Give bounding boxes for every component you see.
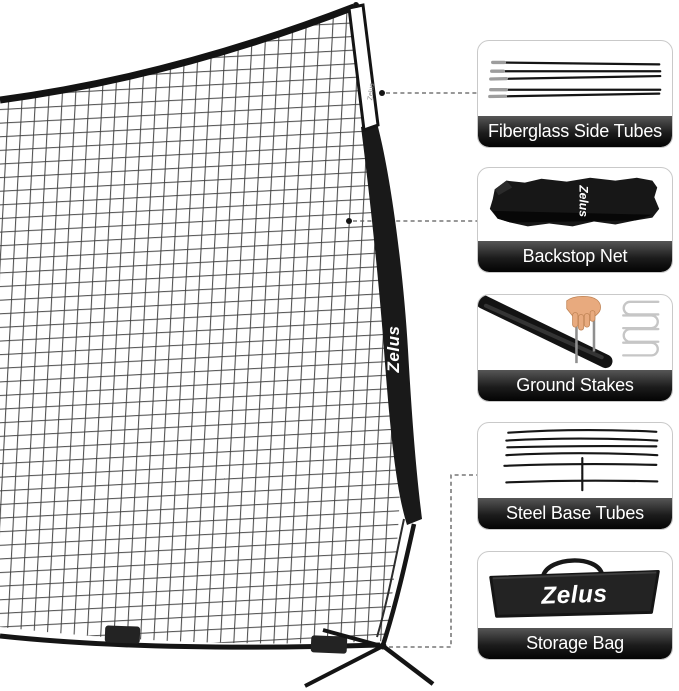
stake-stack-icon <box>623 302 658 356</box>
callout-label-ground-stakes: Ground Stakes <box>478 370 672 401</box>
rolled-net-icon: Zelus <box>478 168 672 241</box>
callout-label-steel-base-tubes: Steel Base Tubes <box>478 498 672 529</box>
base-strap-right <box>311 635 348 654</box>
net-mesh <box>0 9 400 644</box>
connector-fiberglass-tubes <box>379 90 477 96</box>
pole-top-knob <box>353 2 359 8</box>
hand-icon <box>567 296 601 330</box>
callout-card-steel-base-tubes: Steel Base Tubes <box>477 422 673 530</box>
callout-label-fiberglass-side-tubes: Fiberglass Side Tubes <box>478 116 672 147</box>
bag-brand-text: Zelus <box>540 581 608 610</box>
callout-label-backstop-net: Backstop Net <box>478 241 672 272</box>
callout-card-storage-bag: Zelus Storage Bag <box>477 551 673 660</box>
ground-stakes-icon <box>478 295 672 370</box>
callout-card-backstop-net: Zelus Backstop Net <box>477 167 673 273</box>
storage-bag-icon: Zelus <box>478 552 672 628</box>
fiberglass-rods-icon <box>478 41 672 116</box>
steel-tubes-icon <box>478 423 672 498</box>
base-strap-left <box>105 625 141 643</box>
callout-label-storage-bag: Storage Bag <box>478 628 672 659</box>
product-diagram: Zelus Zelus <box>0 0 679 691</box>
callout-card-fiberglass-side-tubes: Fiberglass Side Tubes <box>477 40 673 148</box>
callout-card-ground-stakes: Ground Stakes <box>477 294 673 402</box>
pole-brand-text: Zelus <box>384 326 403 374</box>
bundle-brand-text: Zelus <box>576 184 590 217</box>
